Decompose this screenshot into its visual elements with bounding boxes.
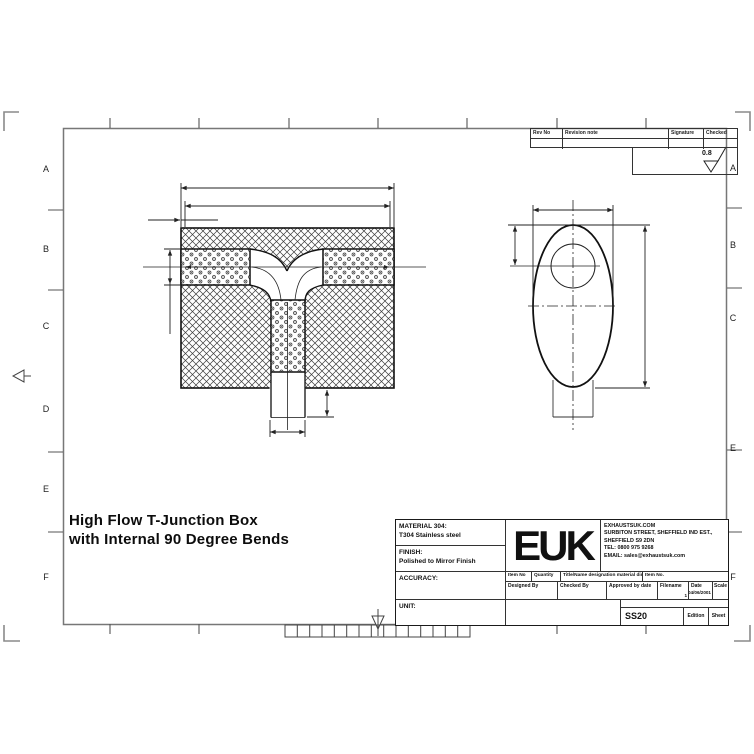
zone-letter-left-b: B xyxy=(39,244,53,254)
finish-cell: FINISH: Polished to Mirror Finish xyxy=(396,546,506,572)
signature-header: Signature xyxy=(669,129,704,139)
company-line4: TEL: 0800 975 9268 xyxy=(604,545,725,553)
material-value: T304 Stainless steel xyxy=(399,531,502,540)
accuracy-cell: ACCURACY: xyxy=(396,572,506,600)
item-no-value-strip xyxy=(621,600,728,608)
zone-letter-right-b: B xyxy=(726,240,740,250)
rev-no-header: Rev No xyxy=(531,129,563,139)
drawing-sheet: A B C D E F A B C E F High Flow T-Juncti… xyxy=(0,0,754,754)
company-line3: SHEFFIELD S9 2DN xyxy=(604,538,725,546)
zone-letter-left-e: E xyxy=(39,484,53,494)
accuracy-label: ACCURACY: xyxy=(399,574,502,583)
side-view-oval xyxy=(508,200,650,430)
filename-value: 1 xyxy=(684,593,687,598)
item-no2-header: Item No. xyxy=(643,572,728,582)
zone-letter-left-f: F xyxy=(39,572,53,582)
finish-label: FINISH: xyxy=(399,548,502,557)
designed-by-cell: Designed By xyxy=(506,582,558,600)
company-address-cell: EXHAUSTSUK.COM SURBITON STREET, SHEFFIEL… xyxy=(601,520,728,572)
revision-table: Rev No Revision note Signature Checked xyxy=(530,128,738,148)
date-cell: Date 04/06/2001 xyxy=(689,582,713,600)
material-cell: MATERIAL 304: T304 Stainless steel xyxy=(396,520,506,546)
drawing-title-line2: with Internal 90 Degree Bends xyxy=(69,530,289,549)
zone-letter-right-e: E xyxy=(726,443,740,453)
approved-by-cell: Approved by date xyxy=(607,582,658,600)
company-logo: EUK xyxy=(506,520,600,572)
designation-header: Title/Name designation material dimensio… xyxy=(561,572,643,582)
front-view-tjunction xyxy=(143,183,426,437)
company-line5: EMAIL: sales@exhaustsuk.com xyxy=(604,553,725,561)
quantity-header: Quantity xyxy=(532,572,561,582)
material-label: MATERIAL 304: xyxy=(399,522,502,531)
zone-letter-left-a: A xyxy=(39,164,53,174)
company-address: EXHAUSTSUK.COM SURBITON STREET, SHEFFIEL… xyxy=(601,520,728,563)
scale-cell: Scale xyxy=(713,582,728,600)
title-block: MATERIAL 304: T304 Stainless steel FINIS… xyxy=(395,519,729,626)
drawing-title-line1: High Flow T-Junction Box xyxy=(69,511,289,530)
company-line2: SURBITON STREET, SHEFFIELD IND EST., xyxy=(604,530,725,538)
filename-label: Filename xyxy=(660,583,682,589)
date-label: Date xyxy=(691,583,702,589)
title-block-empty-cell xyxy=(506,600,621,625)
filename-cell: Filename 1 xyxy=(658,582,689,600)
zone-letter-left-c: C xyxy=(39,321,53,331)
rev-no-cell xyxy=(531,139,563,149)
edition-cell: Edition xyxy=(684,608,709,625)
centering-marks xyxy=(13,370,384,636)
sheet-cell: Sheet xyxy=(709,608,728,625)
zone-letter-left-d: D xyxy=(39,404,53,414)
unit-label: UNIT: xyxy=(399,602,502,611)
item-no-header: Item No xyxy=(506,572,532,582)
logo-cell: EUK xyxy=(506,520,601,572)
checked-header: Checked xyxy=(704,129,737,139)
revision-note-header: Revision note xyxy=(563,129,669,139)
zone-letter-right-c: C xyxy=(726,313,740,323)
part-number: SS20 xyxy=(621,608,683,624)
finish-value: Polished to Mirror Finish xyxy=(399,557,502,566)
company-line1: EXHAUSTSUK.COM xyxy=(604,523,725,531)
technical-drawing-canvas xyxy=(0,0,754,754)
surface-finish-box: 0.8 xyxy=(632,148,738,175)
drawing-title: High Flow T-Junction Box with Internal 9… xyxy=(69,511,289,549)
checked-by-cell: Checked By xyxy=(558,582,607,600)
date-value: 04/06/2001 xyxy=(689,590,711,595)
part-number-cell: SS20 xyxy=(621,608,684,625)
unit-cell: UNIT: xyxy=(396,600,506,625)
surface-roughness-value: 0.8 xyxy=(702,150,712,157)
